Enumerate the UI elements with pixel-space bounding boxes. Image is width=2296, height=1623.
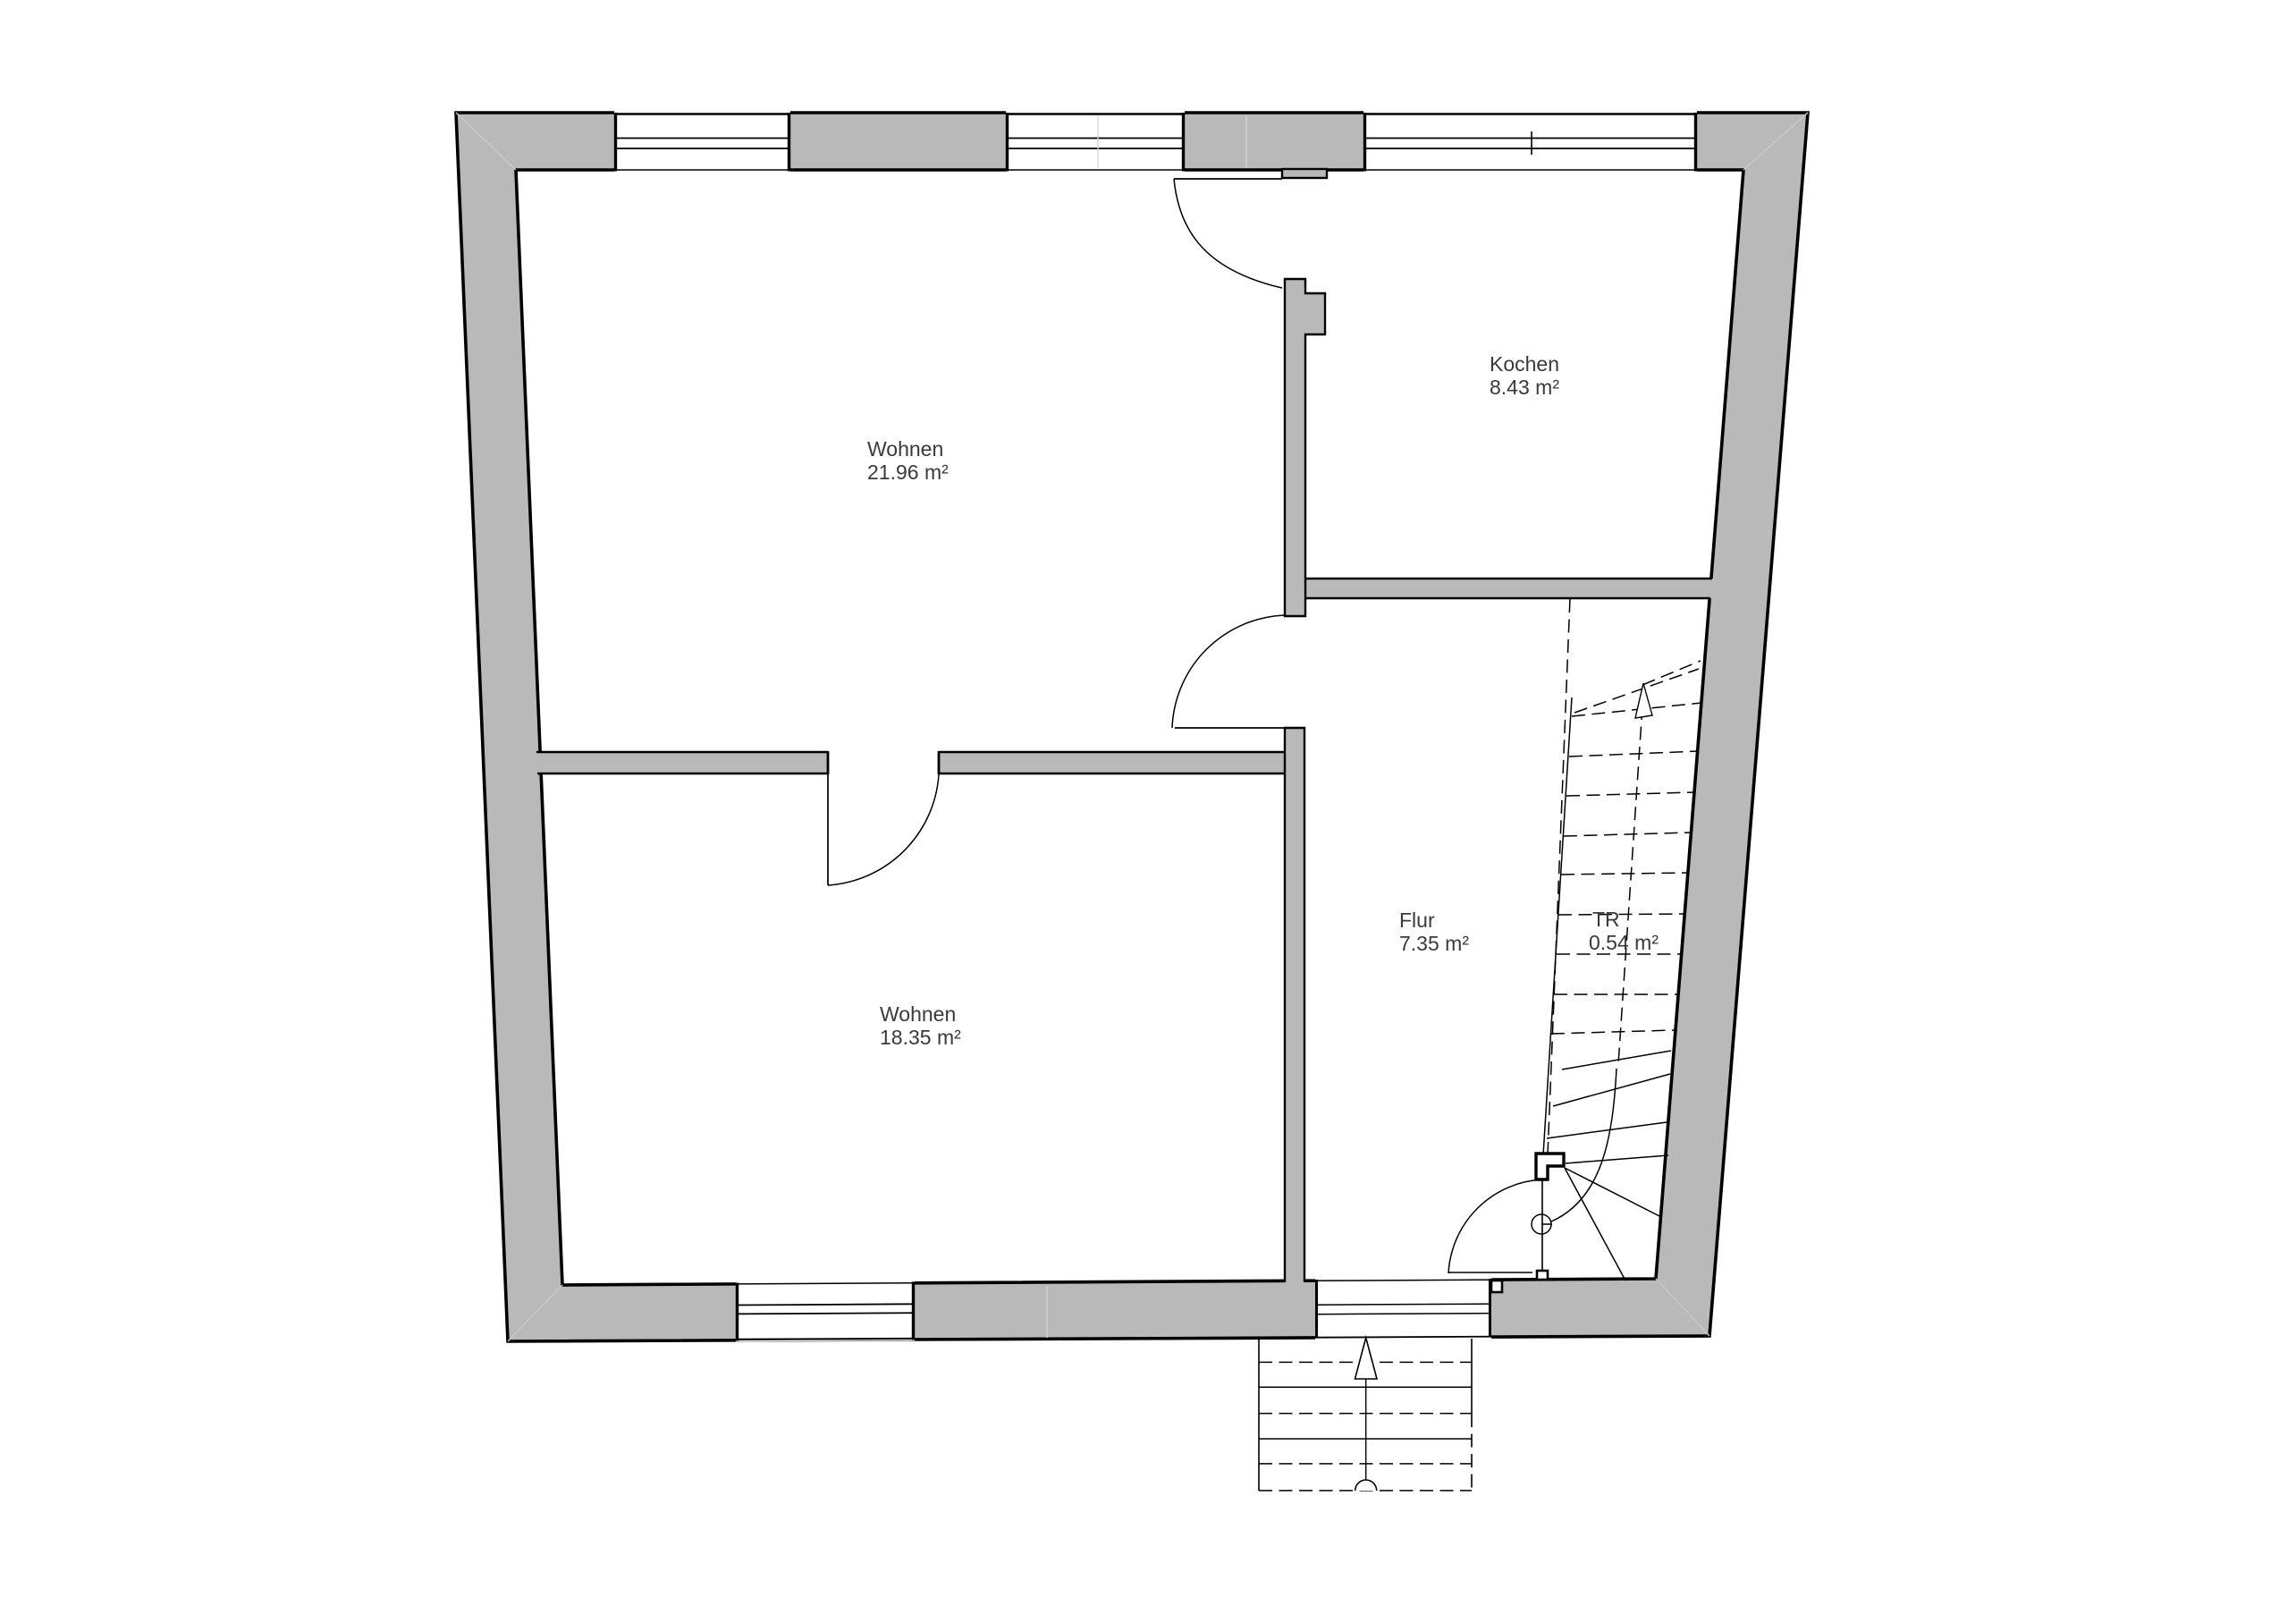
svg-text:7.35 m²: 7.35 m² xyxy=(1399,932,1469,955)
svg-text:TR: TR xyxy=(1592,908,1620,931)
svg-text:8.43 m²: 8.43 m² xyxy=(1490,376,1559,399)
svg-text:18.35 m²: 18.35 m² xyxy=(880,1026,961,1049)
svg-text:0.54 m²: 0.54 m² xyxy=(1589,931,1659,954)
svg-text:Kochen: Kochen xyxy=(1490,352,1559,376)
svg-text:Wohnen: Wohnen xyxy=(880,1002,956,1026)
svg-text:21.96 m²: 21.96 m² xyxy=(867,461,949,484)
svg-text:Wohnen: Wohnen xyxy=(867,437,943,461)
svg-text:Flur: Flur xyxy=(1399,909,1435,932)
